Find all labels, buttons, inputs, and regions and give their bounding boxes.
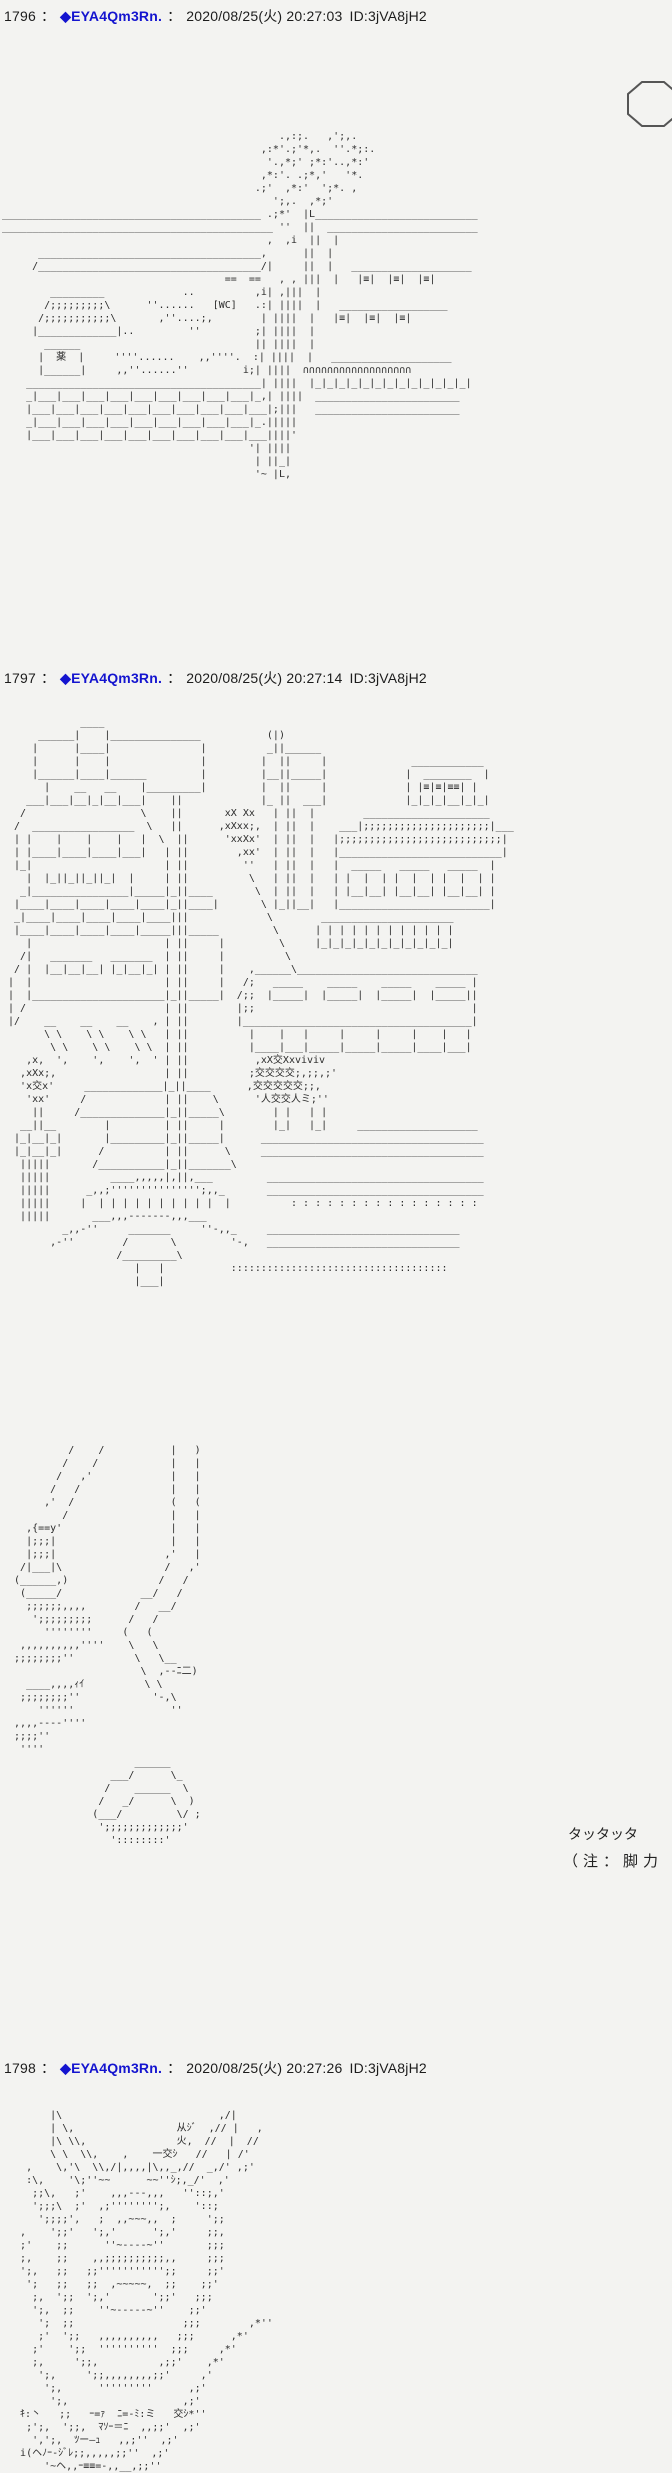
tripcode-name[interactable]: ◆EYA4Qm3Rn. — [60, 2060, 162, 2076]
separator: ： — [167, 8, 181, 24]
author-note-text: （注：脚力 — [563, 1850, 663, 1871]
post-id: ID:3jVA8jH2 — [349, 670, 426, 686]
post-date: 2020/08/25(火) 20:27:14 — [186, 670, 342, 686]
post-1796: 1796：◆EYA4Qm3Rn.：2020/08/25(火) 20:27:03I… — [0, 6, 672, 666]
post-number: 1796 — [4, 8, 36, 24]
post-header: 1798：◆EYA4Qm3Rn.：2020/08/25(火) 20:27:26I… — [4, 2058, 427, 2078]
post-id: ID:3jVA8jH2 — [349, 8, 426, 24]
separator: ： — [41, 2060, 55, 2076]
post-date: 2020/08/25(火) 20:27:03 — [186, 8, 342, 24]
tripcode-name[interactable]: ◆EYA4Qm3Rn. — [60, 8, 162, 24]
thread-page: { "meta": { "bg_color": "#f3f3f1", "text… — [0, 0, 672, 2466]
octagon-sign-icon — [626, 80, 672, 128]
post-number: 1797 — [4, 670, 36, 686]
tripcode-name[interactable]: ◆EYA4Qm3Rn. — [60, 670, 162, 686]
ascii-art-building-scene: .,:;. ,';,. ,:*'.;'*,. ''.*;:. '.,*;' ;*… — [2, 104, 478, 481]
separator: ： — [167, 670, 181, 686]
post-1797: 1797：◆EYA4Qm3Rn.：2020/08/25(火) 20:27:14I… — [0, 668, 672, 2048]
post-header: 1796：◆EYA4Qm3Rn.：2020/08/25(火) 20:27:03I… — [4, 6, 427, 26]
separator: ： — [167, 2060, 181, 2076]
post-header: 1797：◆EYA4Qm3Rn.：2020/08/25(火) 20:27:14I… — [4, 668, 427, 688]
ascii-art-creature: |\ ,/| | \, 从ｼﾞ ,// | , |\ \\, 火, // | /… — [2, 2096, 273, 2473]
separator: ： — [41, 8, 55, 24]
post-number: 1798 — [4, 2060, 36, 2076]
ascii-art-street-and-running-legs: ____ ______| |_______________ (|) | |___… — [2, 716, 514, 1873]
post-id: ID:3jVA8jH2 — [349, 2060, 426, 2076]
post-1798: 1798：◆EYA4Qm3Rn.：2020/08/25(火) 20:27:26I… — [0, 2058, 672, 2466]
separator: ： — [41, 670, 55, 686]
running-sfx-text: タッタッタ — [568, 1824, 638, 1844]
post-date: 2020/08/25(火) 20:27:26 — [186, 2060, 342, 2076]
